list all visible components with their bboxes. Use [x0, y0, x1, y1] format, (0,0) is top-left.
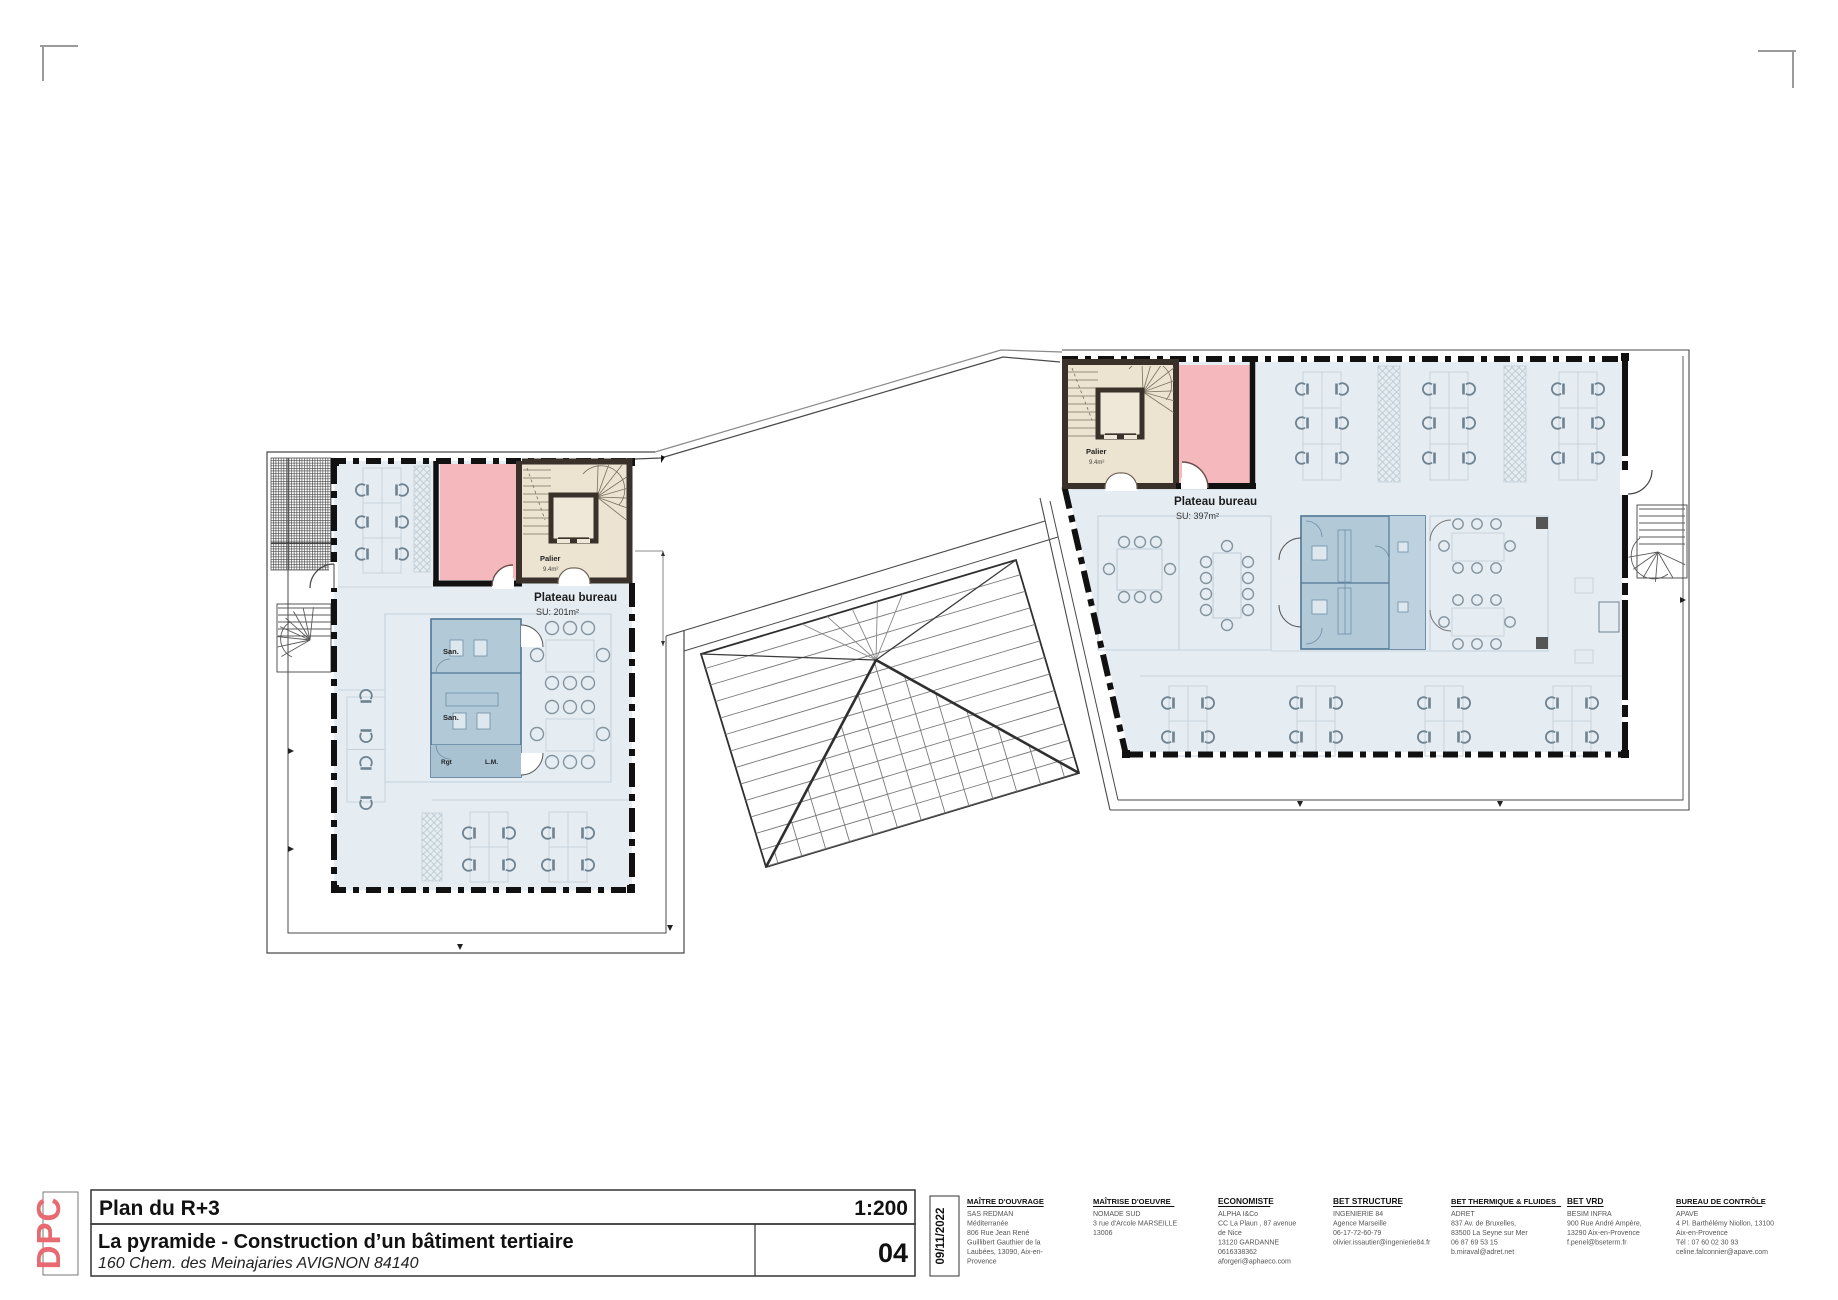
svg-text:ECONOMISTE: ECONOMISTE [1218, 1196, 1274, 1206]
svg-text:04: 04 [878, 1238, 908, 1268]
svg-text:L.M.: L.M. [485, 759, 498, 766]
svg-text:1:200: 1:200 [854, 1197, 908, 1220]
svg-text:Plan du R+3: Plan du R+3 [99, 1197, 220, 1220]
svg-text:Guillibert Gauthier de la: Guillibert Gauthier de la [967, 1240, 1041, 1247]
svg-text:09/11/2022: 09/11/2022 [935, 1208, 947, 1265]
svg-text:Méditerranée: Méditerranée [967, 1221, 1008, 1228]
svg-text:Palier: Palier [540, 554, 561, 563]
svg-text:DPC: DPC [30, 1197, 67, 1270]
svg-text:Agence Marseille: Agence Marseille [1333, 1221, 1387, 1228]
svg-text:SU: 397m²: SU: 397m² [1176, 511, 1219, 521]
svg-text:Plateau bureau: Plateau bureau [534, 591, 617, 604]
svg-text:06-17-72-60-79: 06-17-72-60-79 [1333, 1230, 1381, 1237]
svg-text:13120 GARDANNE: 13120 GARDANNE [1218, 1240, 1279, 1247]
svg-text:CC La Plaun , 87 avenue: CC La Plaun , 87 avenue [1218, 1221, 1296, 1228]
svg-text:b.miraval@adret.net: b.miraval@adret.net [1451, 1249, 1514, 1256]
svg-text:Rgt: Rgt [441, 759, 453, 766]
svg-text:Palier: Palier [1086, 447, 1107, 456]
svg-text:900 Rue André Ampère,: 900 Rue André Ampère, [1567, 1221, 1642, 1228]
svg-text:13006: 13006 [1093, 1230, 1113, 1237]
svg-text:Laubées, 13090, Aix-en-: Laubées, 13090, Aix-en- [967, 1249, 1044, 1256]
svg-text:MAÎTRE D'OUVRAGE: MAÎTRE D'OUVRAGE [967, 1197, 1044, 1206]
svg-text:olivier.issautier@ingenierie84: olivier.issautier@ingenierie84.fr [1333, 1240, 1431, 1247]
svg-text:MAÎTRISE D'OEUVRE: MAÎTRISE D'OEUVRE [1093, 1197, 1171, 1206]
svg-text:BET THERMIQUE & FLUIDES: BET THERMIQUE & FLUIDES [1451, 1197, 1556, 1206]
svg-text:9.4m²: 9.4m² [543, 567, 558, 573]
svg-text:9.4m²: 9.4m² [1089, 460, 1104, 466]
svg-text:Provence: Provence [967, 1259, 997, 1266]
svg-text:13290 Aix-en-Provence: 13290 Aix-en-Provence [1567, 1230, 1640, 1237]
svg-text:celine.falconnier@apave.com: celine.falconnier@apave.com [1676, 1249, 1768, 1256]
svg-text:Aix-en-Provence: Aix-en-Provence [1676, 1230, 1728, 1237]
svg-text:INGENIERIE 84: INGENIERIE 84 [1333, 1211, 1383, 1218]
svg-text:BET STRUCTURE: BET STRUCTURE [1333, 1196, 1404, 1206]
svg-text:Tél : 07 60 02 30 93: Tél : 07 60 02 30 93 [1676, 1240, 1738, 1247]
svg-text:06 87 69 53 15: 06 87 69 53 15 [1451, 1240, 1498, 1247]
svg-text:APAVE: APAVE [1676, 1211, 1699, 1218]
svg-text:837 Av. de Bruxelles,: 837 Av. de Bruxelles, [1451, 1221, 1516, 1228]
svg-text:San.: San. [443, 647, 459, 656]
svg-text:aforgeri@aphaeco.com: aforgeri@aphaeco.com [1218, 1259, 1291, 1266]
svg-text:La pyramide - Construction d’u: La pyramide - Construction d’un bâtiment… [98, 1231, 574, 1253]
svg-text:BUREAU DE CONTRÔLE: BUREAU DE CONTRÔLE [1676, 1197, 1766, 1206]
svg-text:0616338362: 0616338362 [1218, 1249, 1257, 1256]
svg-text:4 Pl. Barthélémy Niollon, 131: 4 Pl. Barthélémy Niollon, 13100 [1676, 1221, 1774, 1228]
svg-text:SAS REDMAN: SAS REDMAN [967, 1211, 1013, 1218]
svg-text:NOMADE SUD: NOMADE SUD [1093, 1211, 1140, 1218]
svg-text:Plateau bureau: Plateau bureau [1174, 495, 1257, 508]
svg-text:San.: San. [443, 713, 459, 722]
svg-text:806 Rue Jean René: 806 Rue Jean René [967, 1230, 1029, 1237]
svg-text:f.penel@bseterm.fr: f.penel@bseterm.fr [1567, 1240, 1627, 1247]
svg-text:BESIM INFRA: BESIM INFRA [1567, 1211, 1612, 1218]
svg-text:SU: 201m²: SU: 201m² [536, 607, 579, 617]
svg-text:ADRET: ADRET [1451, 1211, 1475, 1218]
svg-text:160 Chem. des Meinajaries AVIG: 160 Chem. des Meinajaries AVIGNON 84140 [98, 1255, 419, 1272]
svg-text:BET VRD: BET VRD [1567, 1196, 1603, 1206]
svg-text:3 rue d'Arcole MARSEILLE: 3 rue d'Arcole MARSEILLE [1093, 1221, 1178, 1228]
svg-text:83500 La Seyne sur Mer: 83500 La Seyne sur Mer [1451, 1230, 1528, 1237]
svg-text:ALPHA I&Co: ALPHA I&Co [1218, 1211, 1258, 1218]
svg-text:de Nice: de Nice [1218, 1230, 1242, 1237]
